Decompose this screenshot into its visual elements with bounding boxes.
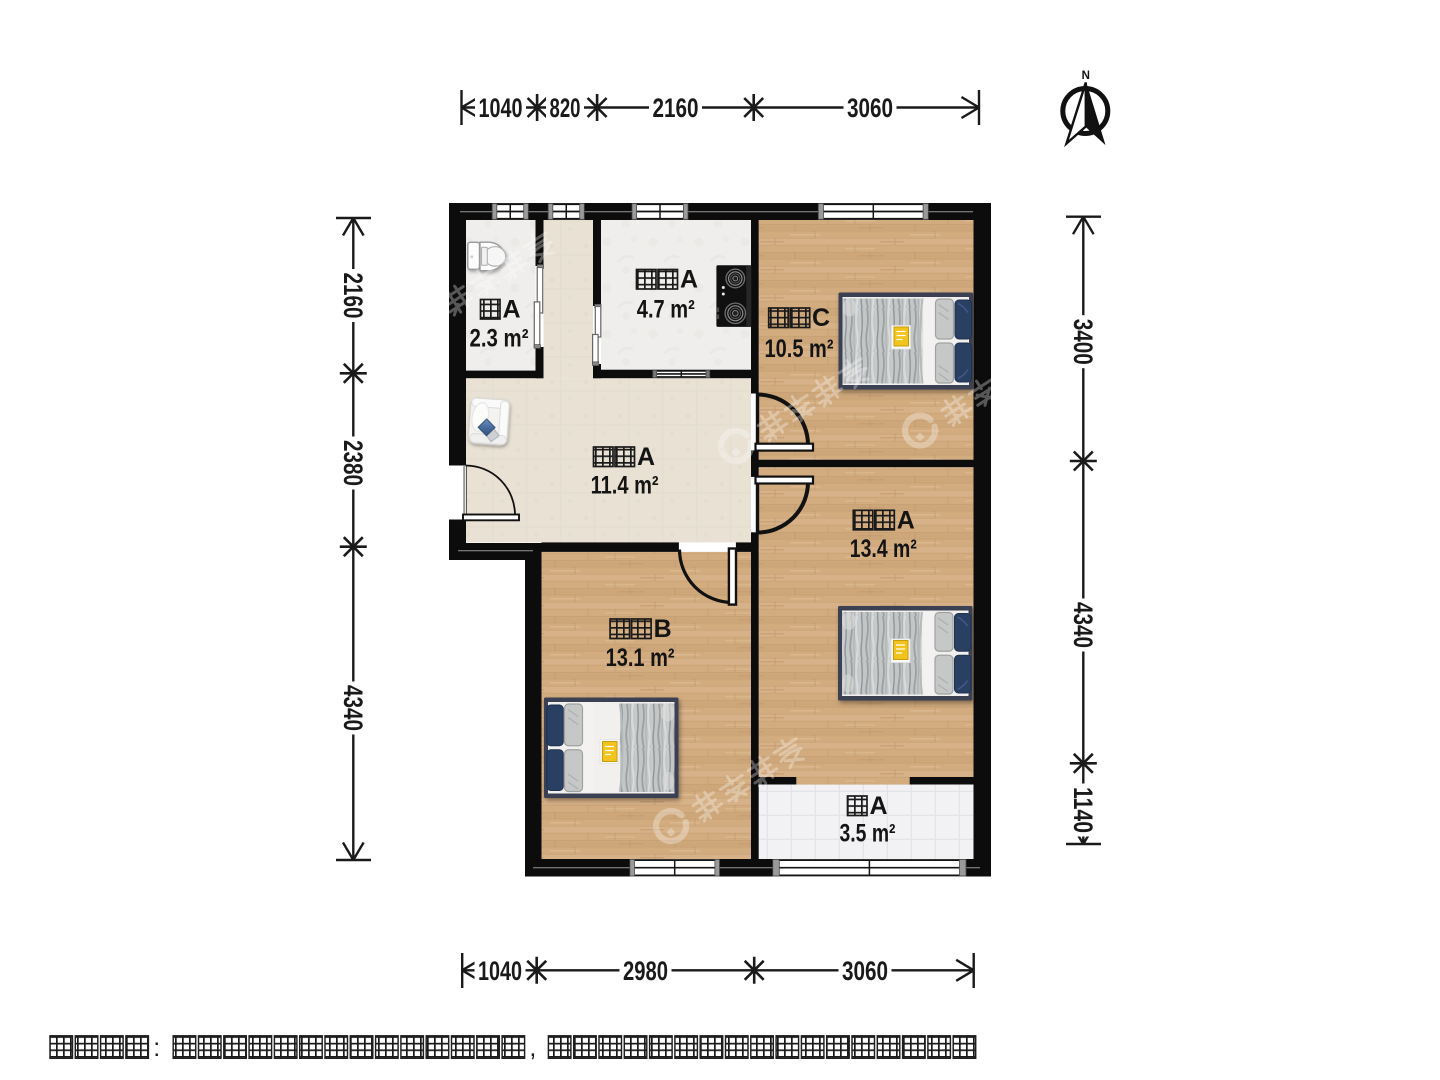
svg-text:13.4 m²: 13.4 m² [850,535,917,563]
svg-text:1140: 1140 [1068,787,1098,833]
svg-text:2.3 m²: 2.3 m² [470,325,529,353]
svg-text:11.4 m²: 11.4 m² [591,472,659,500]
svg-text:B: B [654,615,672,643]
svg-text:4.7 m²: 4.7 m² [637,295,695,323]
svg-text:1040: 1040 [478,956,522,986]
svg-text:3060: 3060 [842,956,888,986]
svg-text::: : [153,1034,160,1062]
svg-text:4340: 4340 [1068,602,1098,648]
svg-text:N: N [1082,70,1090,82]
svg-text:2160: 2160 [338,273,368,319]
svg-text:10.5 m²: 10.5 m² [765,335,834,363]
svg-text:4340: 4340 [338,685,368,731]
svg-text:C: C [812,304,830,332]
svg-text:13.1 m²: 13.1 m² [606,644,675,672]
svg-text:A: A [680,266,698,294]
svg-text:,: , [529,1034,536,1062]
svg-text:2160: 2160 [653,93,699,123]
svg-text:A: A [870,792,888,820]
svg-text:2980: 2980 [623,956,668,986]
svg-text:1040: 1040 [479,93,523,123]
svg-text:A: A [637,443,655,471]
svg-text:3060: 3060 [847,93,893,123]
svg-text:A: A [503,296,521,324]
svg-text:820: 820 [550,93,581,123]
svg-text:3.5 m²: 3.5 m² [840,820,896,848]
svg-text:2380: 2380 [338,440,368,486]
svg-text:A: A [897,506,915,534]
svg-text:3400: 3400 [1068,319,1098,365]
